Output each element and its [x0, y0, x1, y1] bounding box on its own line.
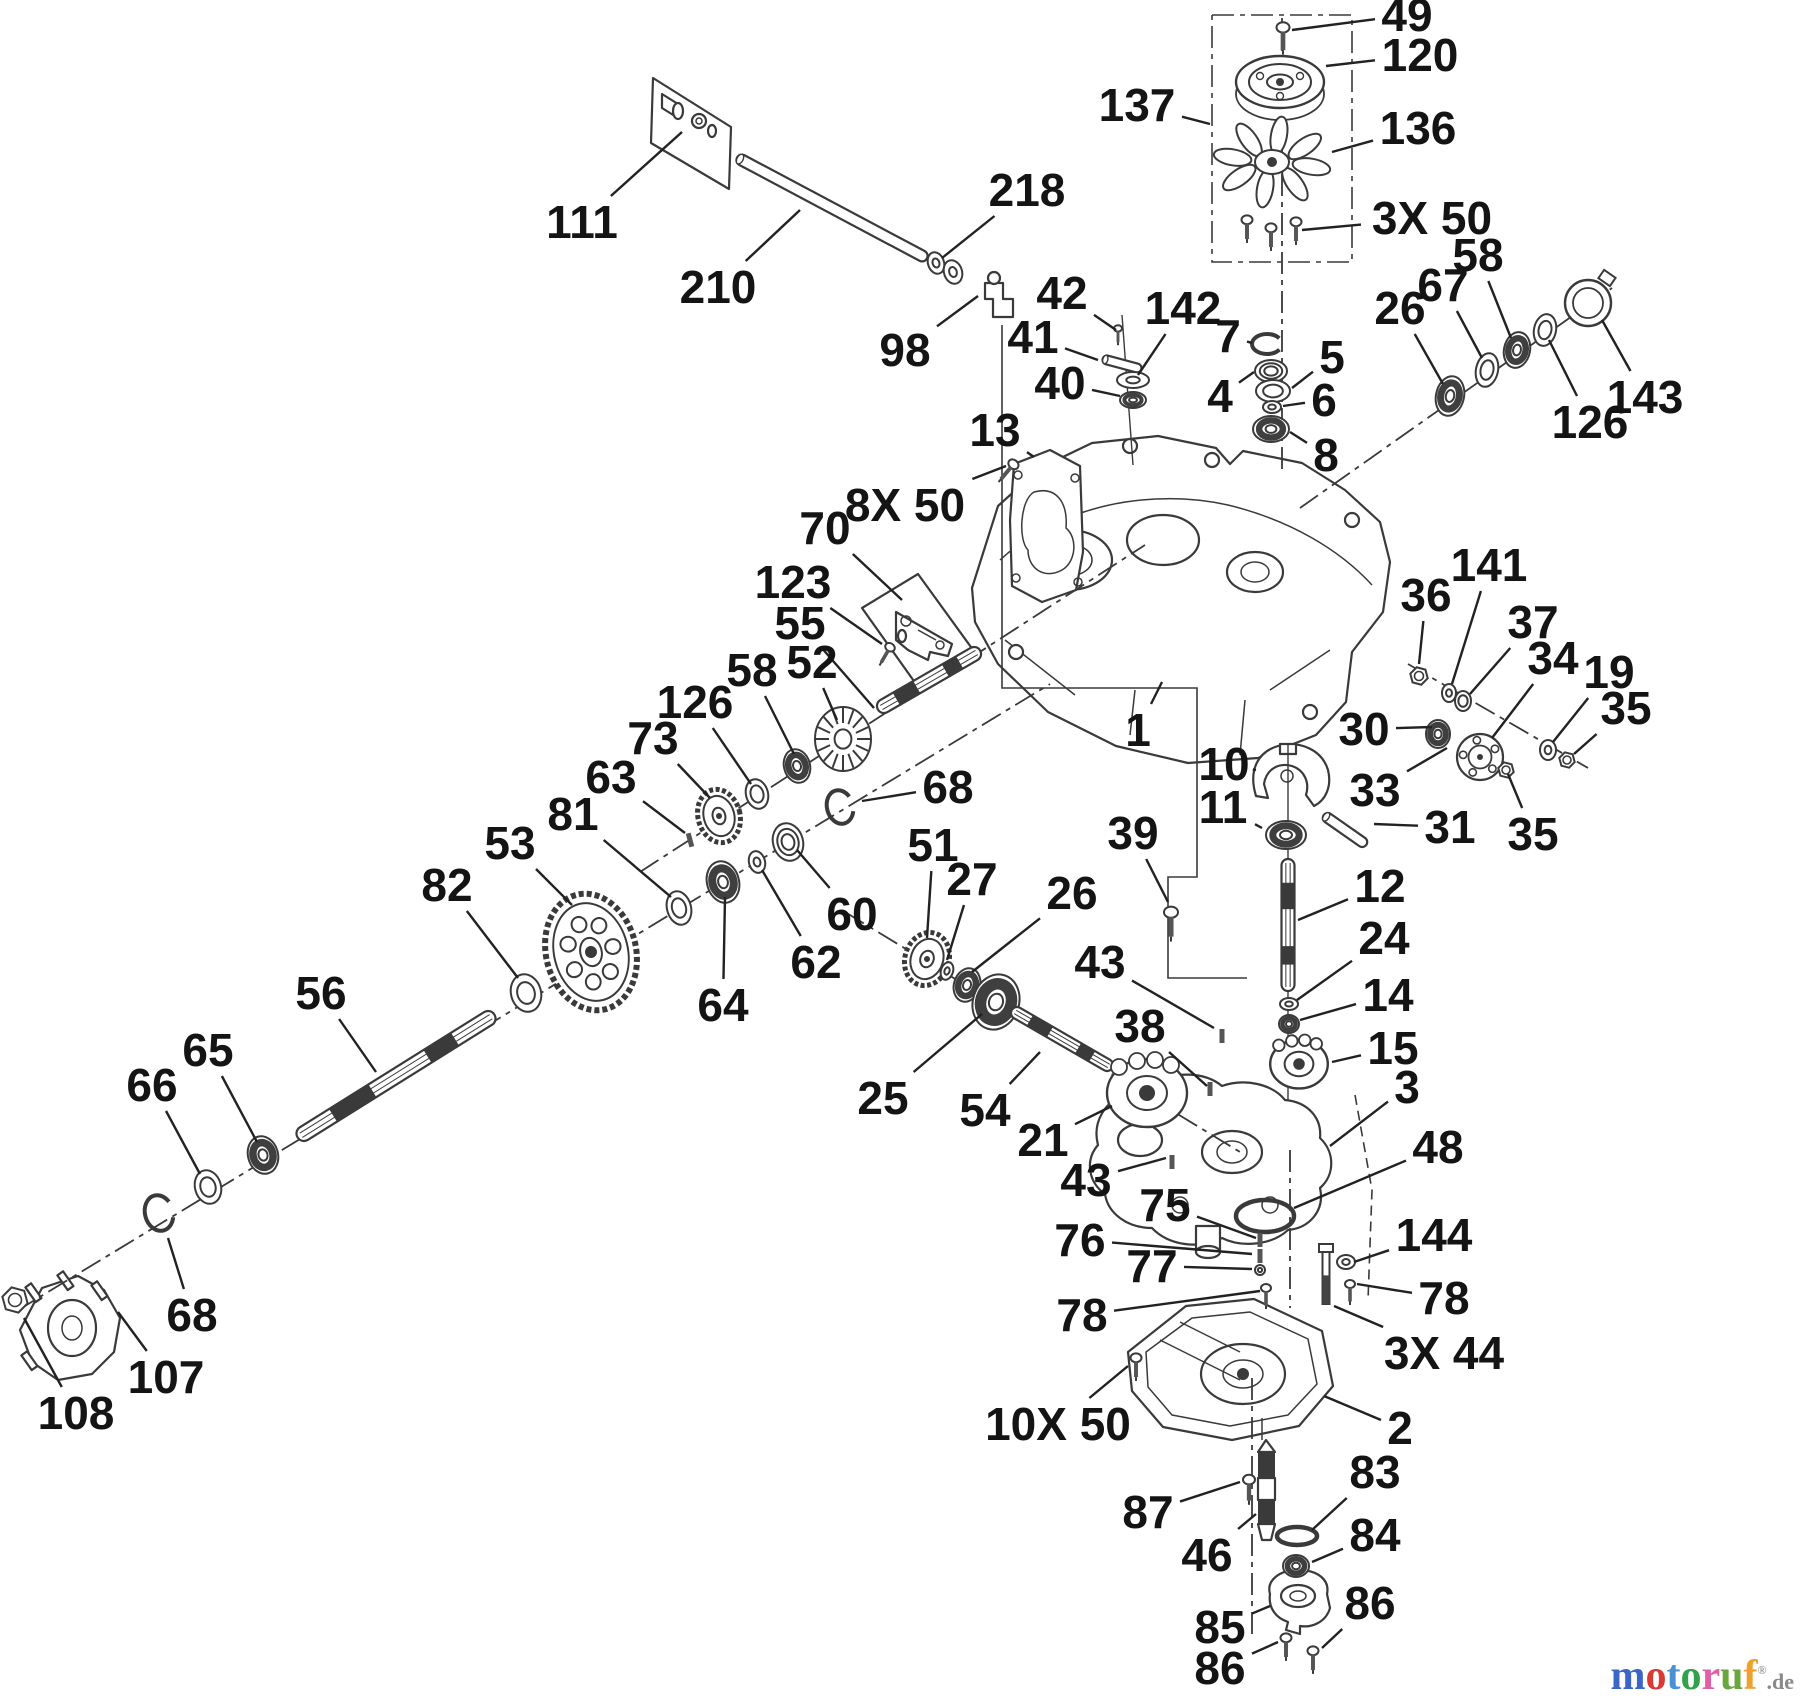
- part-label: 35: [1507, 808, 1558, 860]
- part-label: 84: [1349, 1509, 1401, 1561]
- part-label: 33: [1349, 764, 1400, 816]
- leader-line: [1407, 748, 1447, 771]
- watermark-letter: o: [1646, 1653, 1667, 1699]
- part-ring-5: [1256, 380, 1290, 402]
- leader-line: [1396, 727, 1432, 728]
- part-screw-50-2: [1266, 223, 1277, 251]
- part-label: 3X 44: [1384, 1327, 1505, 1379]
- part-ring-126b: [742, 777, 771, 812]
- part-pin-43b: [1170, 1155, 1175, 1169]
- leader-line: [1354, 1250, 1389, 1262]
- part-label: 143: [1607, 371, 1684, 423]
- leader-line: [1488, 281, 1511, 338]
- leader-line: [1312, 1498, 1347, 1530]
- part-label: 1: [1125, 704, 1151, 756]
- leader-line: [604, 840, 671, 897]
- leader-line: [1297, 961, 1352, 1000]
- leader-line: [1010, 1052, 1040, 1084]
- leader-line: [927, 871, 931, 938]
- part-label: 6: [1311, 374, 1337, 426]
- part-label: 76: [1054, 1214, 1105, 1266]
- part-label: 38: [1114, 1000, 1165, 1052]
- part-washer-77: [1255, 1265, 1265, 1275]
- leader-line: [1602, 320, 1630, 371]
- leader-line: [1452, 591, 1481, 684]
- part-caliper-10: [1253, 744, 1329, 806]
- part-label: 83: [1349, 1446, 1400, 1498]
- part-label: 77: [1126, 1240, 1177, 1292]
- leader-line: [1300, 1004, 1356, 1020]
- leader-line: [1374, 824, 1418, 826]
- part-bearing-30: [1426, 720, 1450, 748]
- part-label: 54: [959, 1084, 1011, 1136]
- part-label: 87: [1122, 1486, 1173, 1538]
- exploded-parts-diagram: 491201371363X 50111210218984214241407456…: [0, 0, 1800, 1703]
- leader-line: [467, 911, 518, 978]
- part-label: 41: [1007, 311, 1058, 363]
- part-washer-19: [1540, 740, 1556, 760]
- part-snapring-68b: [141, 1192, 177, 1234]
- leader-line: [1239, 372, 1254, 383]
- part-label: 30: [1338, 703, 1389, 755]
- leader-line: [937, 296, 978, 326]
- part-bevelgear-52: [815, 707, 871, 771]
- leader-line: [1322, 1629, 1342, 1648]
- leader-line: [1089, 1366, 1128, 1398]
- part-screw-86b: [1308, 1646, 1319, 1674]
- part-screw-87: [1243, 1475, 1255, 1505]
- part-label: 66: [126, 1059, 177, 1111]
- leader-line: [797, 850, 830, 888]
- leader-line: [1298, 899, 1348, 920]
- part-label: 218: [989, 164, 1066, 216]
- leader-line: [723, 897, 725, 979]
- part-label: 13: [969, 404, 1020, 456]
- part-ring-37: [1455, 691, 1471, 711]
- leader-line: [1415, 334, 1443, 384]
- part-label: 8X 50: [845, 479, 965, 531]
- leader-line: [1492, 684, 1533, 738]
- part-label: 53: [484, 817, 535, 869]
- part-label: 52: [786, 636, 837, 688]
- part-label: 68: [922, 761, 973, 813]
- leader-line: [1508, 774, 1522, 808]
- leader-line: [1238, 1514, 1256, 1529]
- leader-line: [1182, 117, 1210, 124]
- watermark-letter: t: [1667, 1653, 1681, 1699]
- part-washer-141: [1442, 684, 1456, 702]
- leader-line: [1574, 734, 1597, 754]
- leader-line: [1470, 648, 1510, 694]
- part-label: 78: [1056, 1289, 1107, 1341]
- part-nut-84: [1283, 1555, 1309, 1577]
- part-label: 8: [1313, 429, 1339, 481]
- leader-line: [166, 1111, 200, 1174]
- part-label: 75: [1139, 1179, 1190, 1231]
- part-bearing-58b: [780, 746, 814, 786]
- part-seal-66: [191, 1167, 225, 1207]
- part-screw-123: [875, 641, 896, 668]
- leader-line: [1138, 334, 1166, 375]
- part-bracket-85: [1269, 1570, 1330, 1634]
- parts-diagram-page: 491201371363X 50111210218984214241407456…: [0, 0, 1800, 1703]
- part-oring-83: [1277, 1527, 1317, 1545]
- part-label: 65: [182, 1024, 233, 1076]
- part-block-15: [1270, 1034, 1328, 1088]
- leader-line: [536, 869, 572, 905]
- leader-line: [168, 1238, 184, 1289]
- part-label: 11: [1199, 781, 1248, 833]
- watermark-letter: f: [1744, 1653, 1758, 1699]
- leader-line: [1184, 1267, 1252, 1269]
- part-pin-75: [1258, 1233, 1263, 1247]
- part-label: 40: [1034, 357, 1085, 409]
- leader-line: [1419, 621, 1423, 664]
- leader-line: [1094, 315, 1116, 330]
- part-gear-73: [692, 784, 747, 847]
- watermark-letter: u: [1720, 1653, 1743, 1699]
- part-washer-40: [1120, 392, 1146, 408]
- part-label: 81: [547, 788, 598, 840]
- part-label: 142: [1145, 282, 1222, 334]
- leader-line: [862, 792, 916, 801]
- leader-line: [1283, 403, 1305, 406]
- watermark-domain-suffix: .de: [1767, 1669, 1795, 1694]
- part-rod-210: [735, 153, 930, 264]
- part-label: 43: [1074, 936, 1125, 988]
- leader-line: [1292, 372, 1313, 388]
- part-shaft-12: [1282, 859, 1295, 991]
- leader-line: [972, 918, 1040, 972]
- part-label: 58: [1452, 229, 1503, 281]
- part-nut-35a: [1559, 752, 1574, 767]
- part-washer-24: [1280, 998, 1298, 1010]
- leader-line: [1326, 60, 1375, 66]
- part-nut-36: [1410, 667, 1427, 684]
- leader-line: [947, 905, 964, 960]
- leader-line: [339, 1019, 376, 1072]
- part-screw-50-1: [1242, 215, 1253, 243]
- part-ring-82: [507, 971, 546, 1015]
- leader-line: [118, 1312, 147, 1351]
- part-label: 31: [1424, 801, 1475, 853]
- part-washer-142: [1117, 372, 1149, 388]
- part-bolt-44: [1319, 1244, 1333, 1304]
- leader-line: [914, 1014, 982, 1072]
- leader-line: [1092, 390, 1120, 396]
- part-bearing-4: [1255, 360, 1287, 382]
- leader-line: [1255, 824, 1262, 828]
- part-label: 56: [295, 967, 346, 1019]
- leader-line: [762, 870, 801, 936]
- part-bearing-8: [1253, 416, 1289, 442]
- part-bolt-49: [1277, 22, 1290, 55]
- part-pulley-120: [1236, 56, 1324, 120]
- part-nut-35b: [1498, 762, 1513, 777]
- part-label: 62: [790, 936, 841, 988]
- leader-line: [1180, 1482, 1240, 1502]
- part-bushing-14: [1279, 1015, 1299, 1033]
- part-label: 68: [166, 1289, 217, 1341]
- leader-line: [611, 132, 682, 196]
- part-pin-38: [1208, 1082, 1213, 1096]
- leader-line: [1247, 342, 1252, 343]
- part-label: 64: [697, 979, 749, 1031]
- part-label: 141: [1451, 539, 1528, 591]
- part-pin-76: [1258, 1249, 1263, 1263]
- part-label: 107: [128, 1351, 205, 1403]
- part-fan-136: [1213, 115, 1332, 208]
- watermark-letter: r: [1702, 1653, 1721, 1699]
- watermark-motoruf-link[interactable]: motoruf®.de: [1611, 1655, 1794, 1697]
- part-snapring-68a: [823, 787, 857, 827]
- watermark-wordmark: motoruf: [1611, 1653, 1758, 1699]
- part-bearing-64: [702, 858, 744, 907]
- part-flange-34: [1457, 734, 1503, 780]
- leader-line: [853, 554, 902, 600]
- part-shaft-54: [1009, 1005, 1115, 1073]
- part-label: 82: [421, 859, 472, 911]
- leader-line: [1292, 19, 1375, 30]
- part-detail-panel-70: [862, 574, 976, 691]
- part-label: 14: [1362, 969, 1414, 1021]
- part-link-31: [1321, 811, 1369, 849]
- part-label: 27: [946, 853, 997, 905]
- part-label: 137: [1099, 79, 1176, 131]
- part-label: 120: [1382, 29, 1459, 81]
- leader-line: [713, 728, 751, 784]
- leader-line: [1252, 1642, 1278, 1654]
- generated-parts: [2, 22, 1615, 1674]
- part-label: 24: [1358, 912, 1410, 964]
- part-label: 86: [1194, 1642, 1245, 1694]
- part-label: 7: [1215, 310, 1241, 362]
- part-label: 70: [799, 502, 850, 554]
- part-label: 10X 50: [985, 1398, 1131, 1450]
- leader-line: [1253, 769, 1256, 770]
- leader-line: [1457, 311, 1482, 358]
- leader-line: [1553, 698, 1588, 742]
- part-bottom-cover-2: [1128, 1299, 1333, 1440]
- leader-line: [1146, 859, 1168, 902]
- part-label: 39: [1107, 807, 1158, 859]
- part-label: 58: [726, 644, 777, 696]
- part-bearing-11: [1266, 821, 1306, 849]
- leader-line: [746, 210, 800, 261]
- watermark-letter: m: [1611, 1653, 1646, 1699]
- part-pin-43a: [1220, 1029, 1225, 1043]
- part-bearing-58a: [1501, 330, 1534, 371]
- part-label: 34: [1527, 632, 1579, 684]
- leader-line: [1324, 1396, 1381, 1420]
- part-washer-6: [1263, 401, 1281, 413]
- part-screw-86a: [1281, 1633, 1292, 1661]
- part-link-41: [1102, 354, 1143, 373]
- part-label: 25: [857, 1072, 908, 1124]
- watermark-letter: o: [1681, 1653, 1702, 1699]
- part-washer-62: [746, 849, 767, 874]
- part-shaft-56: [294, 1008, 499, 1144]
- part-label: 46: [1181, 1529, 1232, 1581]
- part-block-21: [1107, 1052, 1187, 1127]
- part-label: 48: [1412, 1121, 1463, 1173]
- part-label: 43: [1060, 1154, 1111, 1206]
- leader-line: [1312, 1549, 1343, 1562]
- part-label: 12: [1354, 860, 1405, 912]
- part-labels: 491201371363X 50111210218984214241407456…: [24, 0, 1683, 1694]
- part-gear-53: [533, 884, 649, 1020]
- part-detail-panel-111: [651, 78, 731, 189]
- part-label: 144: [1396, 1209, 1473, 1261]
- part-snapring-7: [1252, 334, 1282, 354]
- part-label: 26: [1046, 867, 1097, 919]
- leader-line: [678, 764, 710, 798]
- part-label: 98: [879, 324, 930, 376]
- part-washer-144: [1337, 1255, 1355, 1269]
- leader-line: [643, 801, 685, 833]
- leader-line: [1290, 432, 1307, 443]
- centerlines: [15, 15, 1612, 1640]
- part-fitting-39: [1164, 907, 1178, 942]
- part-label: 35: [1600, 682, 1651, 734]
- part-label: 3: [1394, 1061, 1420, 1113]
- leader-line: [1334, 1306, 1383, 1327]
- part-label: 108: [38, 1387, 115, 1439]
- leader-line: [1549, 340, 1577, 396]
- part-screw-78b: [1345, 1280, 1355, 1305]
- leader-line: [1332, 1055, 1361, 1062]
- part-label: 111: [546, 196, 618, 248]
- part-pin-63: [686, 833, 694, 848]
- part-screw-50-3: [1291, 217, 1302, 245]
- leader-line: [765, 696, 794, 754]
- part-filter-46: [1258, 1418, 1275, 1540]
- leader-line: [942, 216, 995, 258]
- part-label: 136: [1380, 102, 1457, 154]
- part-nut-108: [2, 1287, 27, 1312]
- watermark-registered-mark: ®: [1758, 1663, 1767, 1677]
- leader-line: [1357, 1284, 1412, 1293]
- part-label: 210: [680, 261, 757, 313]
- part-label: 86: [1344, 1577, 1395, 1629]
- part-gasket-13: [1010, 450, 1083, 602]
- part-label: 36: [1400, 569, 1451, 621]
- leader-line: [1027, 452, 1034, 457]
- part-label: 78: [1418, 1272, 1469, 1324]
- leader-line: [1252, 1606, 1270, 1614]
- part-label: 60: [826, 888, 877, 940]
- leader-line: [222, 1076, 257, 1142]
- part-label: 4: [1207, 370, 1233, 422]
- part-cap-143: [1565, 270, 1616, 326]
- part-hub-107: [20, 1271, 120, 1380]
- part-bearing-60: [769, 820, 808, 864]
- leader-line: [1330, 1102, 1388, 1146]
